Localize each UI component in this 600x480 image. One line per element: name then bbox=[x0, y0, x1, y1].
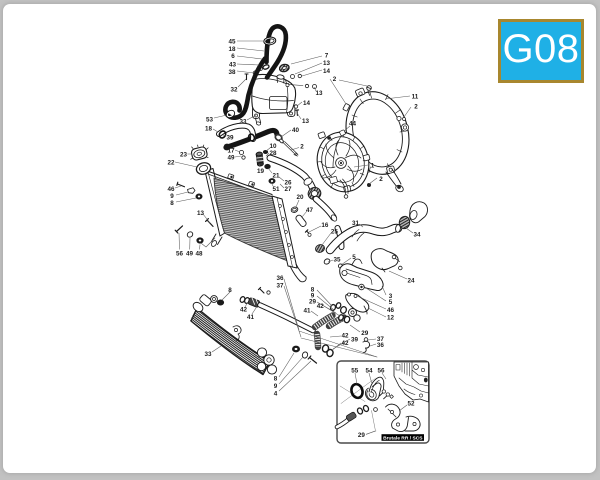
svg-text:36: 36 bbox=[377, 342, 385, 349]
svg-text:42: 42 bbox=[341, 340, 349, 347]
svg-text:13: 13 bbox=[197, 210, 205, 217]
svg-text:55: 55 bbox=[351, 367, 359, 374]
svg-text:51: 51 bbox=[272, 186, 280, 193]
svg-text:39: 39 bbox=[226, 134, 234, 141]
svg-text:42: 42 bbox=[240, 306, 248, 313]
svg-text:17: 17 bbox=[227, 147, 235, 154]
svg-text:5: 5 bbox=[389, 299, 393, 306]
svg-text:46: 46 bbox=[167, 186, 175, 193]
svg-text:2: 2 bbox=[414, 103, 418, 110]
svg-text:8: 8 bbox=[228, 287, 232, 294]
svg-text:40: 40 bbox=[292, 127, 300, 134]
svg-text:56: 56 bbox=[377, 367, 385, 374]
svg-text:11: 11 bbox=[412, 93, 419, 100]
svg-text:29: 29 bbox=[358, 432, 366, 439]
svg-text:14: 14 bbox=[323, 68, 331, 75]
svg-text:9: 9 bbox=[274, 383, 278, 390]
svg-text:49: 49 bbox=[227, 154, 235, 161]
svg-text:Brutale RR / SCS: Brutale RR / SCS bbox=[383, 436, 423, 442]
svg-text:49: 49 bbox=[186, 250, 194, 257]
svg-text:23: 23 bbox=[180, 151, 188, 158]
svg-text:41: 41 bbox=[247, 314, 255, 321]
svg-text:38: 38 bbox=[228, 69, 236, 76]
svg-text:42: 42 bbox=[341, 332, 349, 339]
svg-text:18: 18 bbox=[228, 46, 236, 53]
svg-text:4: 4 bbox=[274, 390, 278, 397]
svg-text:13: 13 bbox=[323, 60, 331, 67]
svg-text:13: 13 bbox=[302, 118, 310, 125]
svg-text:10: 10 bbox=[269, 143, 277, 150]
svg-text:28: 28 bbox=[269, 150, 277, 157]
svg-text:43: 43 bbox=[229, 61, 237, 68]
svg-text:35: 35 bbox=[333, 256, 341, 263]
svg-text:1: 1 bbox=[371, 162, 375, 169]
svg-text:45: 45 bbox=[228, 38, 236, 45]
svg-text:42: 42 bbox=[317, 303, 325, 310]
svg-text:54: 54 bbox=[365, 367, 373, 374]
svg-text:8: 8 bbox=[274, 375, 278, 382]
svg-text:22: 22 bbox=[167, 159, 175, 166]
svg-text:27: 27 bbox=[284, 186, 292, 193]
svg-text:46: 46 bbox=[387, 307, 395, 314]
svg-text:2: 2 bbox=[379, 176, 383, 183]
svg-text:53: 53 bbox=[206, 116, 214, 123]
svg-text:12: 12 bbox=[387, 315, 395, 322]
svg-text:36: 36 bbox=[276, 275, 284, 282]
svg-text:21: 21 bbox=[272, 172, 280, 179]
svg-text:37: 37 bbox=[276, 282, 284, 289]
svg-text:47: 47 bbox=[306, 207, 314, 214]
svg-text:44: 44 bbox=[349, 120, 357, 127]
svg-text:48: 48 bbox=[195, 250, 203, 257]
svg-text:32: 32 bbox=[230, 86, 238, 93]
svg-text:16: 16 bbox=[321, 222, 329, 229]
svg-text:14: 14 bbox=[303, 100, 311, 107]
svg-text:33: 33 bbox=[204, 351, 212, 358]
svg-text:8: 8 bbox=[170, 200, 174, 207]
svg-text:7: 7 bbox=[325, 52, 329, 59]
svg-text:2: 2 bbox=[300, 144, 304, 151]
svg-text:9: 9 bbox=[170, 193, 174, 200]
svg-text:31: 31 bbox=[352, 220, 360, 227]
svg-text:19: 19 bbox=[257, 168, 265, 175]
svg-text:6: 6 bbox=[231, 53, 235, 60]
svg-text:25: 25 bbox=[331, 229, 339, 236]
svg-text:29: 29 bbox=[361, 330, 369, 337]
svg-text:24: 24 bbox=[407, 277, 415, 284]
svg-text:41: 41 bbox=[303, 307, 311, 314]
svg-text:52: 52 bbox=[407, 400, 415, 407]
svg-text:39: 39 bbox=[351, 337, 359, 344]
svg-text:18: 18 bbox=[205, 125, 213, 132]
svg-text:34: 34 bbox=[413, 231, 421, 238]
svg-text:29: 29 bbox=[309, 298, 317, 305]
svg-text:2: 2 bbox=[333, 76, 337, 83]
svg-text:13: 13 bbox=[315, 90, 323, 97]
svg-text:5: 5 bbox=[352, 254, 356, 261]
svg-text:56: 56 bbox=[176, 250, 184, 257]
svg-text:33: 33 bbox=[239, 118, 247, 125]
svg-text:20: 20 bbox=[296, 194, 304, 201]
